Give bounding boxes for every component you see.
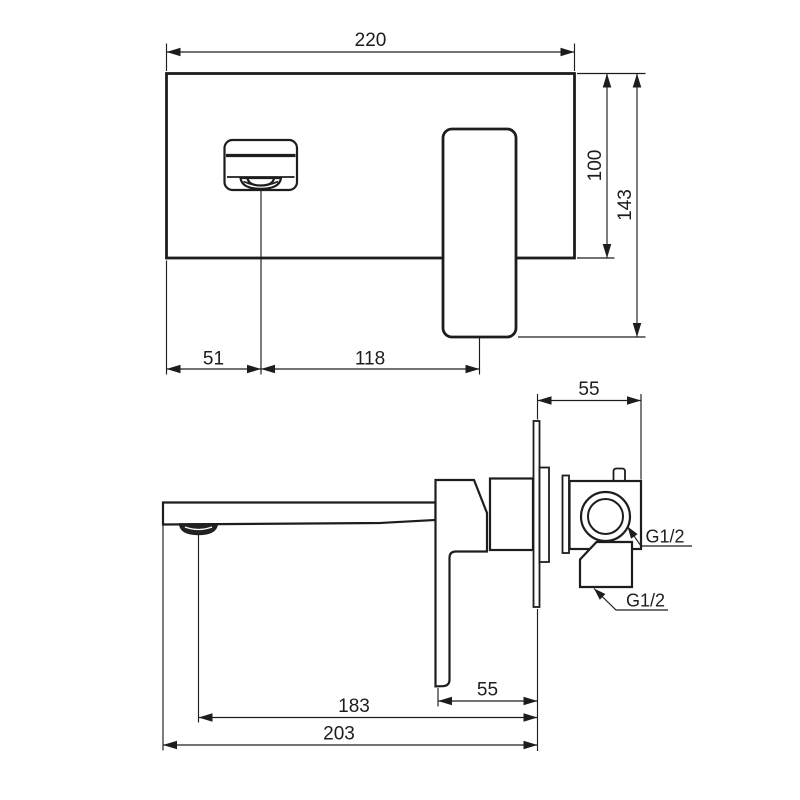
arrowhead <box>247 365 261 374</box>
dim-spout-position: 51 118 <box>167 261 480 375</box>
callout-lower-connection: G1/2 <box>594 589 668 611</box>
dim-label-100: 100 <box>585 150 606 182</box>
spout-front <box>225 140 298 190</box>
thread-label-upper: G1/2 <box>646 527 685 547</box>
arrowhead <box>627 396 641 405</box>
arrowhead <box>167 365 181 374</box>
dim-label-55-bottom: 55 <box>477 680 498 701</box>
locking-nut <box>563 476 570 554</box>
arrowhead <box>261 365 275 374</box>
arrowhead <box>163 741 177 750</box>
mounting-flange <box>540 468 550 563</box>
arrowhead <box>524 741 538 750</box>
dim-label-55-top: 55 <box>578 379 599 400</box>
dim-plate-height: 100 <box>577 74 646 259</box>
dim-lever-to-wall: 55 <box>438 680 538 706</box>
arrowhead <box>633 74 642 88</box>
side-view: G1/2 G1/2 55 55 <box>163 379 692 751</box>
arrowhead <box>199 713 213 722</box>
arrowhead <box>538 396 552 405</box>
spout-side <box>163 503 436 525</box>
dim-label-118: 118 <box>355 349 385 370</box>
technical-drawing-canvas: 220 100 143 51 118 <box>0 0 800 800</box>
arrowhead <box>524 697 538 706</box>
handle-side <box>436 480 488 686</box>
dim-label-143: 143 <box>615 189 636 221</box>
arrowhead <box>561 48 575 57</box>
handle-front <box>443 129 516 337</box>
thread-label-lower: G1/2 <box>626 591 665 611</box>
dim-body-depth: 55 <box>538 379 642 480</box>
dim-label-203: 203 <box>323 724 355 745</box>
arrowhead <box>524 713 538 722</box>
dim-label-220: 220 <box>355 30 387 51</box>
arrowhead <box>633 323 642 337</box>
cartridge-block <box>490 479 533 551</box>
drawing-page: 220 100 143 51 118 <box>0 0 800 800</box>
wall-plate-side <box>534 421 540 607</box>
dim-plate-width: 220 <box>167 30 575 71</box>
dim-spout-reach: 203 <box>163 724 538 750</box>
front-view: 220 100 143 51 118 <box>167 30 646 375</box>
arrowhead <box>167 48 181 57</box>
arrowhead <box>466 365 480 374</box>
arrowhead <box>438 697 452 706</box>
dim-label-183: 183 <box>338 696 370 717</box>
dim-label-51: 51 <box>203 349 224 370</box>
arrowhead <box>603 74 612 88</box>
arrowhead <box>603 244 612 258</box>
